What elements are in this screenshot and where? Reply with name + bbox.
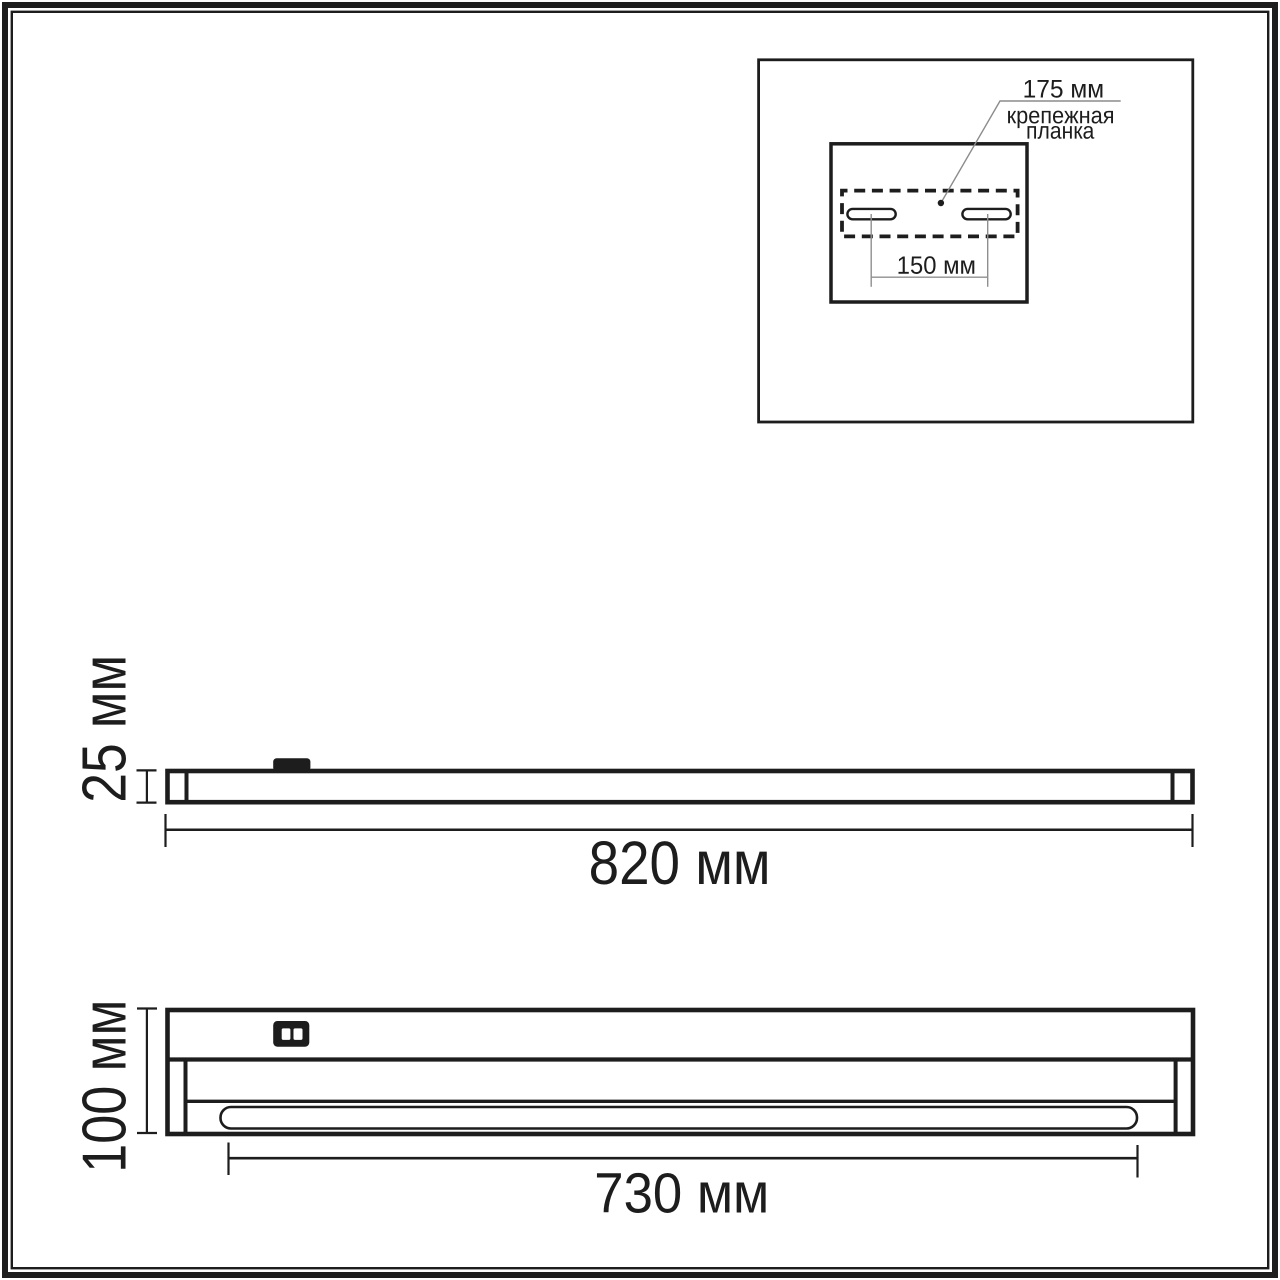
svg-text:730 мм: 730 мм bbox=[594, 1162, 769, 1226]
svg-text:100 мм: 100 мм bbox=[71, 1000, 140, 1173]
svg-text:820 мм: 820 мм bbox=[589, 829, 771, 898]
svg-text:25 мм: 25 мм bbox=[71, 655, 140, 803]
